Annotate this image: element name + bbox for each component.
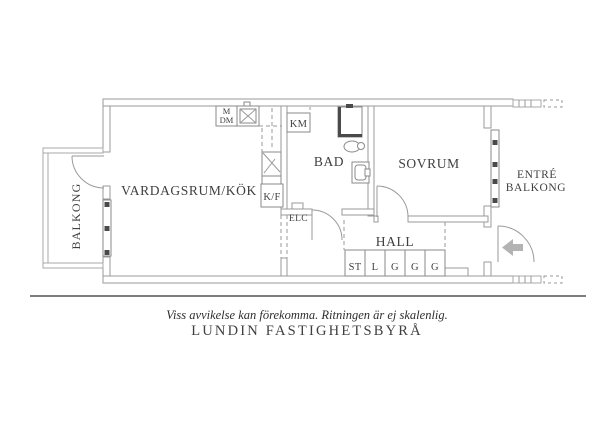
washer-dashed [287,106,310,113]
balcony-railing [43,148,48,268]
label-bedroom: SOVRUM [398,156,459,171]
label-electrical: ELC [289,214,308,224]
label-entry-balcony-2: BALKONG [506,182,566,194]
sink-basin [355,165,366,180]
window-mullion [105,250,110,255]
window-mullion [105,226,110,231]
label-hall: HALL [376,234,414,249]
window-mullion [493,140,498,145]
walkway-edge [513,100,541,107]
wall-segment [103,276,513,283]
hall-notch [445,268,468,276]
label-entry-balcony-1: ENTRÉ [517,167,557,181]
label-closet-g3: G [431,262,439,273]
footer-disclaimer: Viss avvikelse kan förekomma. Ritningen … [166,308,448,322]
window-mullion [493,198,498,203]
wall-segment [408,216,488,222]
stove-tick [244,102,250,106]
wall-segment [281,258,287,276]
shower [338,107,362,137]
label-washing-machine: KM [290,119,308,130]
counter-unit [262,176,281,184]
walkway-continues [544,100,562,107]
shower-head [346,104,353,108]
wall-segment [103,257,110,276]
wall-segment [484,106,491,128]
balcony-railing [43,263,103,268]
bedroom-door-arc [377,186,408,217]
balcony-railing [43,148,103,153]
label-closet-st: ST [349,262,362,273]
wall-segment [103,106,110,152]
label-fridge-freezer: K/F [263,192,280,203]
bathroom-door-arc [312,210,342,240]
label-closet-g1: G [391,262,399,273]
wall-segment [368,106,374,216]
label-bathroom: BAD [314,154,344,169]
walkway-edge [513,276,541,283]
wall-segment [342,209,374,215]
window-mullion [493,162,498,167]
floor-plan-svg: VARDAGSRUM/KÖK BAD SOVRUM HALL BALKONG E… [0,0,615,435]
bathroom-fixtures [287,104,370,183]
window-mullion [493,179,498,184]
window-mullion [105,202,110,207]
sink-tap [365,169,370,176]
label-living-kitchen: VARDAGSRUM/KÖK [121,183,257,198]
footer-brand: LUNDIN FASTIGHETSBYRÅ [191,323,423,339]
wall-segment [484,262,491,276]
entrance-arrow-icon [502,239,523,256]
hall-area [281,215,445,276]
floor-plan-page: VARDAGSRUM/KÖK BAD SOVRUM HALL BALKONG E… [0,0,615,435]
label-balcony: BALKONG [69,182,83,249]
label-closet-g2: G [411,262,419,273]
toilet-flush [358,143,365,150]
wall-segment [103,186,110,199]
elc-niche [292,203,303,209]
label-dishwasher: DM [220,115,234,125]
label-closet-l: L [372,262,379,273]
wall-segment [103,99,513,106]
walkway-continues [544,276,562,283]
